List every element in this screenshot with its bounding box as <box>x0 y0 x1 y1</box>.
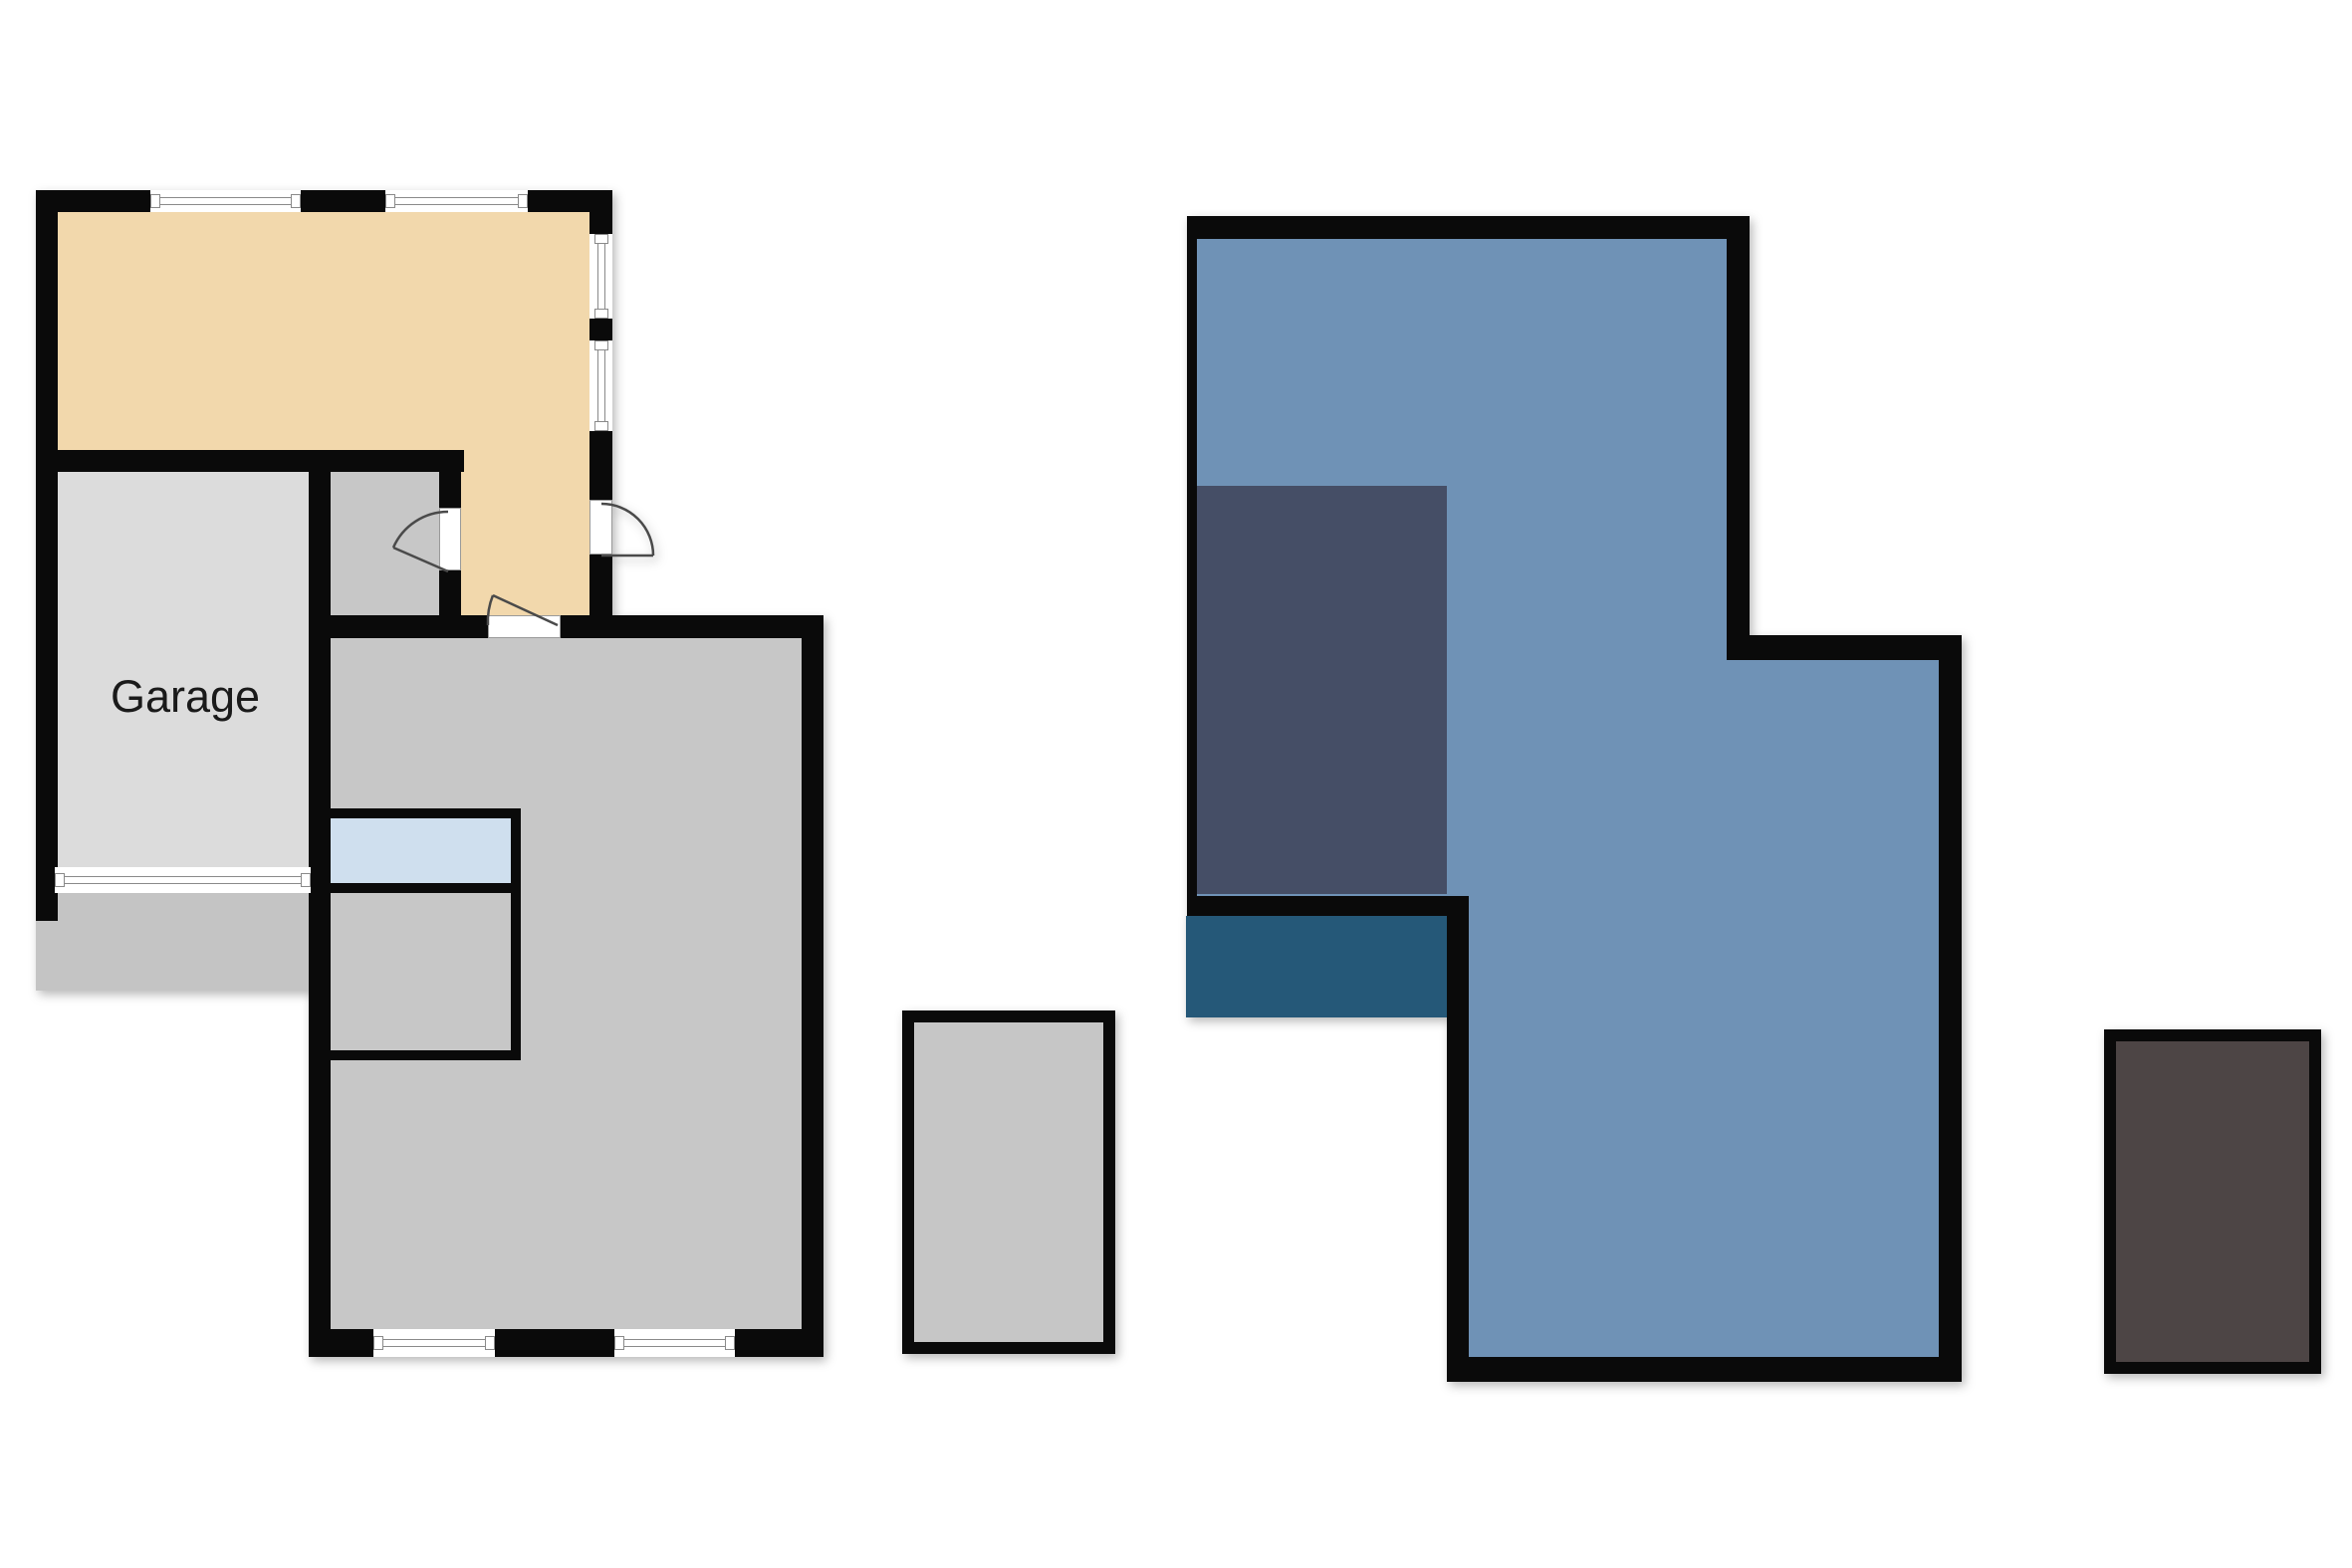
outbuilding-gray <box>902 1010 1115 1354</box>
right-plan-side-room <box>1197 486 1447 894</box>
outbuilding-brown <box>2104 1029 2321 1374</box>
right-floor-plan <box>0 0 2352 1568</box>
right-plan-balcony <box>1186 916 1447 1017</box>
floorplan-canvas: Garage <box>0 0 2352 1568</box>
